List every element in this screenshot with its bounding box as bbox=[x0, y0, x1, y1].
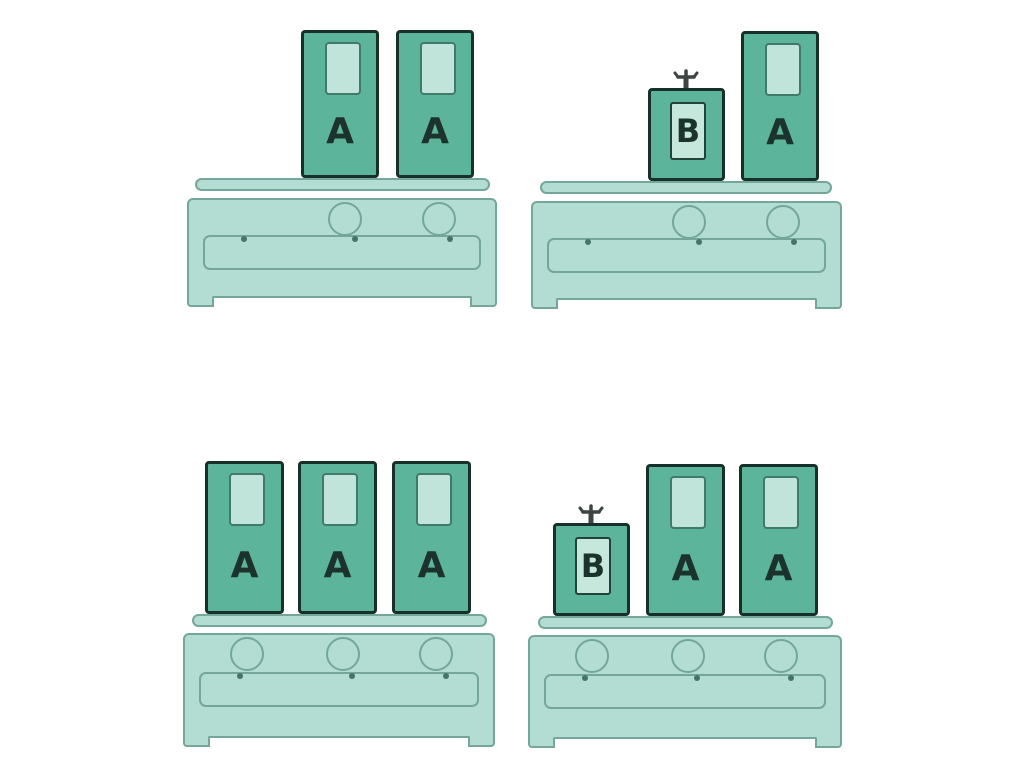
carton-a: A bbox=[739, 464, 818, 616]
bench-counter-top bbox=[538, 616, 833, 629]
carton-letter: A bbox=[395, 548, 468, 584]
bench-body bbox=[183, 633, 495, 747]
rivet-dot-icon bbox=[237, 673, 243, 679]
carton-label-window bbox=[322, 473, 358, 526]
rivet-dot-icon bbox=[447, 236, 453, 242]
carton-letter: A bbox=[744, 115, 816, 151]
carton-a: A bbox=[741, 31, 819, 181]
rivet-dot-icon bbox=[585, 239, 591, 245]
carton-label-window bbox=[763, 476, 799, 529]
carton-letter: A bbox=[649, 551, 722, 587]
bench-knob-icon bbox=[575, 639, 609, 673]
bench-knob-icon bbox=[671, 639, 705, 673]
carton-letter: A bbox=[304, 114, 376, 150]
bench-counter-top bbox=[540, 181, 832, 194]
rivet-dot-icon bbox=[443, 673, 449, 679]
carton-label-window bbox=[670, 476, 706, 529]
bench-base-notch bbox=[553, 737, 817, 748]
carton-a: A bbox=[646, 464, 725, 616]
bench-counter-top bbox=[195, 178, 490, 191]
bench-knob-icon bbox=[766, 205, 800, 239]
carton-a: A bbox=[301, 30, 379, 178]
rivet-dot-icon bbox=[694, 675, 700, 681]
rivet-dot-icon bbox=[696, 239, 702, 245]
rivet-dot-icon bbox=[241, 236, 247, 242]
bench-body bbox=[528, 635, 842, 748]
carton-label-window bbox=[416, 473, 452, 526]
carton-a: A bbox=[396, 30, 474, 178]
carton-b: B bbox=[648, 88, 725, 181]
bench-base-notch bbox=[208, 736, 470, 747]
bench-body bbox=[187, 198, 497, 307]
carton-letter: A bbox=[208, 548, 281, 584]
bench-knob-icon bbox=[672, 205, 706, 239]
bench-base-notch bbox=[556, 298, 817, 309]
carton-a: A bbox=[298, 461, 377, 614]
bench-body bbox=[531, 201, 842, 309]
carton-letter: A bbox=[742, 551, 815, 587]
rivet-dot-icon bbox=[352, 236, 358, 242]
carton-letter: A bbox=[399, 114, 471, 150]
carton-b: B bbox=[553, 523, 630, 616]
carton-label-window bbox=[765, 43, 801, 96]
bench-counter-top bbox=[192, 614, 487, 627]
bench-knob-icon bbox=[230, 637, 264, 671]
carton-label-window bbox=[420, 42, 456, 95]
rivet-dot-icon bbox=[788, 675, 794, 681]
rivet-dot-icon bbox=[791, 239, 797, 245]
rivet-dot-icon bbox=[349, 673, 355, 679]
bench-knob-icon bbox=[422, 202, 456, 236]
carton-a: A bbox=[392, 461, 471, 614]
bench-knob-icon bbox=[326, 637, 360, 671]
carton-label-panel: B bbox=[575, 537, 611, 595]
bench-knob-icon bbox=[419, 637, 453, 671]
rivet-dot-icon bbox=[582, 675, 588, 681]
tap-valve-icon bbox=[578, 504, 604, 524]
carton-label-panel: B bbox=[670, 102, 706, 160]
bench-base-notch bbox=[212, 296, 472, 307]
carton-a: A bbox=[205, 461, 284, 614]
carton-label-window bbox=[229, 473, 265, 526]
bench-knob-icon bbox=[328, 202, 362, 236]
carton-label-window bbox=[325, 42, 361, 95]
carton-letter: A bbox=[301, 548, 374, 584]
tap-valve-icon bbox=[673, 69, 699, 89]
illustration-canvas: A A B bbox=[0, 0, 1024, 768]
bench-knob-icon bbox=[764, 639, 798, 673]
